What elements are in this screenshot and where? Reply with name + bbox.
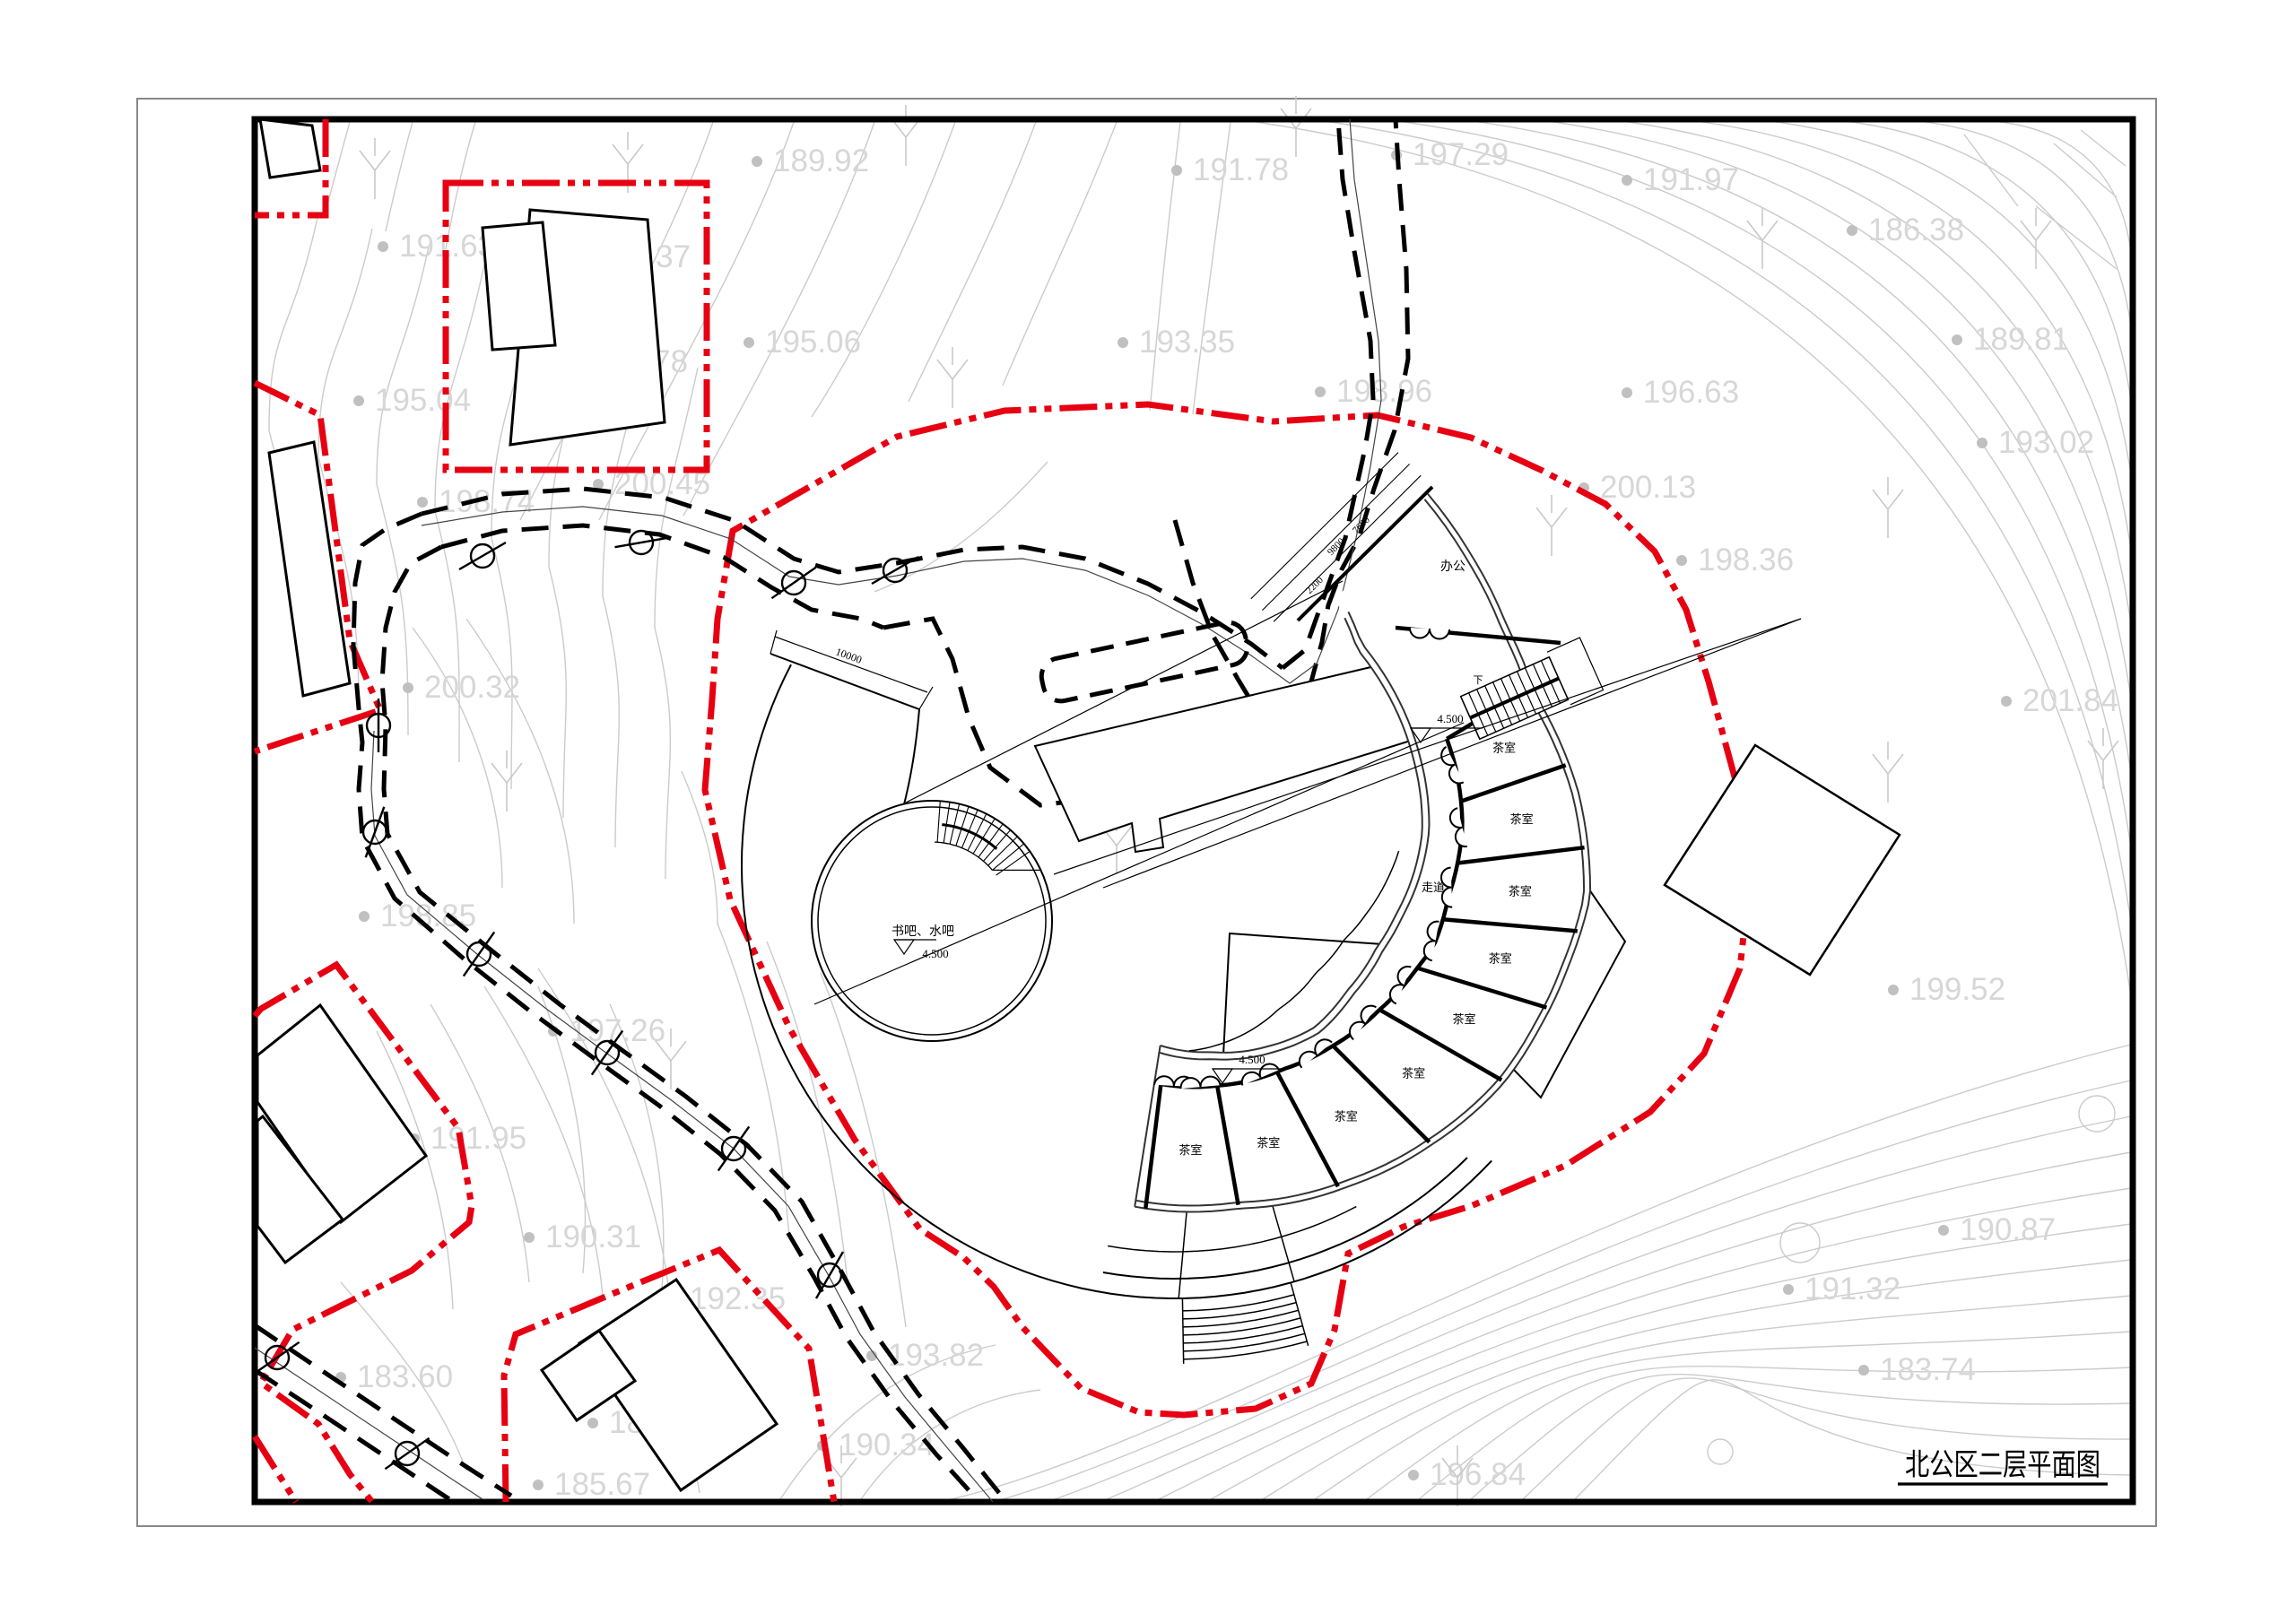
svg-text:198.74: 198.74 [439,484,535,519]
svg-text:茶室: 茶室 [1257,1136,1280,1150]
svg-text:200.32: 200.32 [424,670,520,705]
svg-text:191.95: 191.95 [430,1121,526,1156]
svg-text:198.36: 198.36 [1698,542,1794,577]
svg-text:茶室: 茶室 [1489,952,1512,966]
svg-text:193.02: 193.02 [1998,425,2094,460]
svg-text:197.29: 197.29 [1413,137,1509,172]
svg-text:下: 下 [1474,675,1483,686]
svg-text:书吧、水吧: 书吧、水吧 [891,924,954,939]
svg-text:197.26: 197.26 [570,1013,665,1048]
svg-text:北公区二层平面图: 北公区二层平面图 [1905,1449,2100,1482]
svg-text:4.500: 4.500 [922,947,948,960]
svg-text:198.96: 198.96 [1336,374,1432,409]
svg-text:196.84: 196.84 [1430,1457,1526,1492]
svg-text:茶室: 茶室 [1509,885,1532,898]
svg-text:186.38: 186.38 [1868,213,1964,247]
svg-text:183.60: 183.60 [357,1359,453,1394]
svg-text:200.13: 200.13 [1600,470,1696,505]
svg-text:190.34: 190.34 [839,1428,935,1462]
svg-text:茶室: 茶室 [1178,1143,1202,1157]
svg-text:191.32: 191.32 [1805,1271,1900,1306]
svg-text:189.92: 189.92 [773,143,869,178]
svg-text:茶室: 茶室 [1452,1012,1475,1026]
svg-text:196.63: 196.63 [1643,375,1739,410]
svg-text:183.74: 183.74 [1880,1352,1976,1387]
svg-text:191.97: 191.97 [1643,162,1739,197]
svg-text:190.31: 190.31 [545,1219,641,1254]
svg-text:190.87: 190.87 [1960,1212,2056,1247]
svg-text:茶室: 茶室 [1335,1109,1358,1123]
svg-text:茶室: 茶室 [1402,1067,1425,1081]
svg-text:185.67: 185.67 [554,1467,650,1502]
svg-text:193.82: 193.82 [888,1338,984,1373]
svg-text:4.500: 4.500 [1239,1053,1265,1066]
svg-text:191.78: 191.78 [1193,152,1289,187]
svg-text:201.84: 201.84 [2022,683,2118,718]
svg-text:189.81: 189.81 [1973,322,2069,357]
svg-text:茶室: 茶室 [1510,812,1534,826]
svg-text:办公: 办公 [1440,560,1465,574]
svg-text:199.52: 199.52 [1909,972,2005,1007]
svg-text:走道: 走道 [1422,881,1445,894]
svg-text:193.35: 193.35 [1139,325,1235,360]
svg-text:茶室: 茶室 [1492,742,1516,755]
svg-text:195.04: 195.04 [375,383,471,418]
svg-text:195.06: 195.06 [765,325,861,360]
svg-text:4.500: 4.500 [1437,712,1463,725]
